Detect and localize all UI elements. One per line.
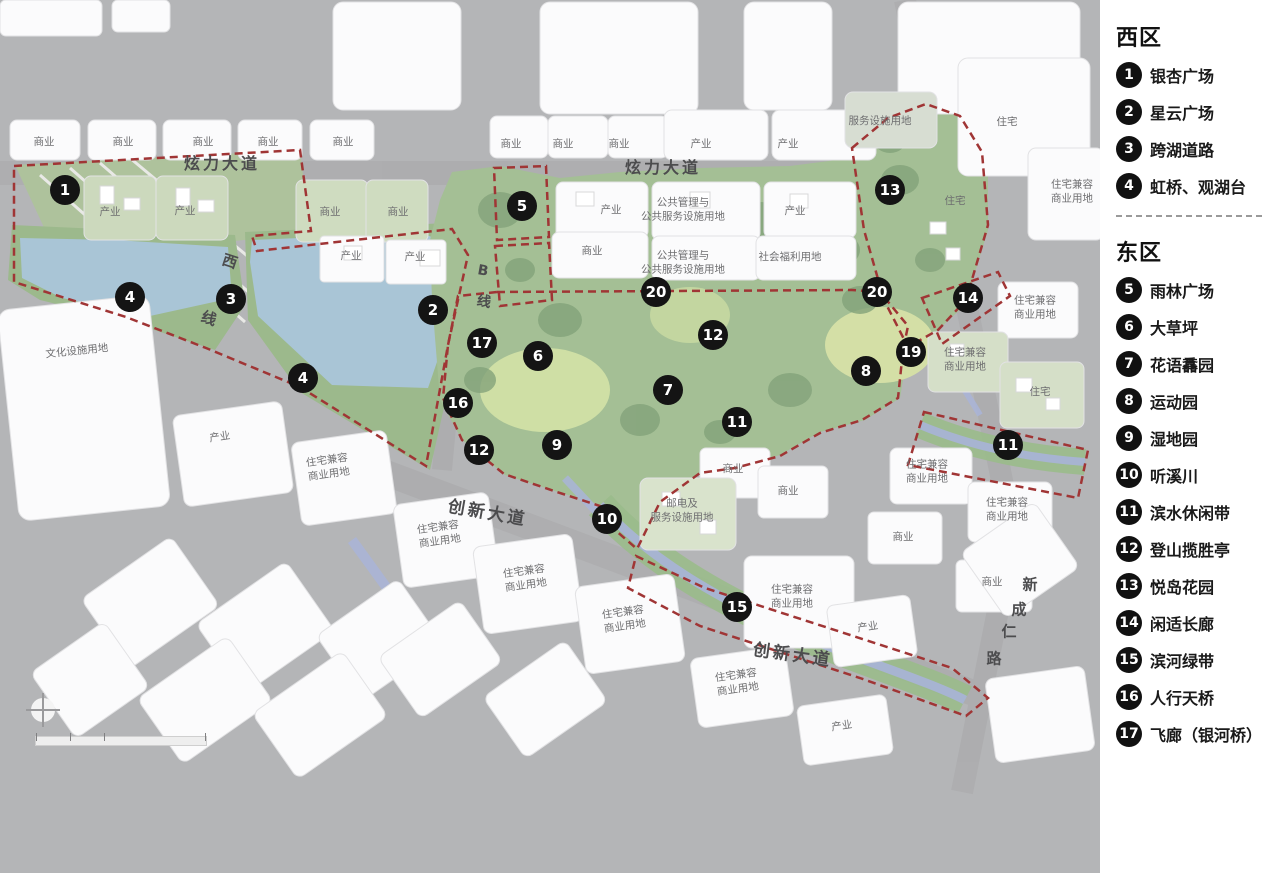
area-label: 商业 [723,463,744,477]
legend-east-list: 5雨林广场6大草坪7花语馫园8运动园9湿地园10听溪川11滨水休闲带12登山揽胜… [1116,277,1270,747]
legend-item-label: 闲适长廊 [1150,611,1214,635]
area-label: 商业 [553,138,574,152]
road-label: 路 [986,648,1001,669]
legend-number-badge: 2 [1116,99,1142,125]
legend-item-6: 6大草坪 [1116,314,1270,340]
compass-icon [31,698,55,722]
legend-panel: 西区 1银杏广场2星云广场3跨湖道路4虹桥、观湖台 东区 5雨林广场6大草坪7花… [1100,0,1280,873]
scale-bar [35,736,207,746]
area-label: 商业 [113,136,134,150]
legend-number-badge: 9 [1116,425,1142,451]
legend-number-badge: 15 [1116,647,1142,673]
legend-number-badge: 17 [1116,721,1142,747]
map-marker-15: 15 [722,592,752,622]
map-marker-17: 17 [467,328,497,358]
legend-item-1: 1银杏广场 [1116,62,1270,88]
map-marker-10: 10 [592,504,622,534]
area-label: 商业 [388,206,409,220]
legend-item-11: 11滨水休闲带 [1116,499,1270,525]
road-label: 成 [1011,599,1026,620]
road-label: 炫力大道 [625,154,701,178]
legend-number-badge: 11 [1116,499,1142,525]
legend-item-2: 2星云广场 [1116,99,1270,125]
map-marker-6: 6 [523,341,553,371]
area-label: 社会福利用地 [759,251,822,265]
map-marker-11: 11 [722,407,752,437]
map-marker-19: 19 [896,337,926,367]
legend-divider [1116,215,1262,217]
map-marker-4: 4 [115,282,145,312]
legend-number-badge: 3 [1116,136,1142,162]
map-marker-2: 2 [418,295,448,325]
road-label: 新 [1022,574,1037,595]
legend-item-label: 湿地园 [1150,426,1198,450]
legend-item-label: 跨湖道路 [1150,137,1214,161]
map-marker-20: 20 [862,277,892,307]
legend-item-label: 星云广场 [1150,100,1214,124]
legend-number-badge: 16 [1116,684,1142,710]
area-label: 住宅兼容 商业用地 [906,458,948,485]
legend-item-label: 飞廊（银河桥） [1150,722,1262,746]
area-label: 住宅 [945,195,966,209]
map-marker-5: 5 [507,191,537,221]
legend-west-title: 西区 [1116,20,1270,52]
area-label: 住宅兼容 商业用地 [714,667,759,700]
area-label: 住宅兼容 商业用地 [416,519,461,552]
map-marker-20: 20 [641,277,671,307]
area-label: 商业 [501,138,522,152]
legend-east-title: 东区 [1116,235,1270,267]
area-label: 商业 [778,485,799,499]
legend-item-4: 4虹桥、观湖台 [1116,173,1270,199]
legend-item-9: 9湿地园 [1116,425,1270,451]
map-marker-12: 12 [464,435,494,465]
legend-number-badge: 6 [1116,314,1142,340]
road-label: 仁 [1001,621,1016,642]
map-marker-9: 9 [542,430,572,460]
map-marker-4: 4 [288,363,318,393]
map-marker-7: 7 [653,375,683,405]
area-label: 产业 [691,138,712,152]
legend-item-15: 15滨河绿带 [1116,647,1270,673]
legend-number-badge: 14 [1116,610,1142,636]
map-marker-1: 1 [50,175,80,205]
legend-item-label: 银杏广场 [1150,63,1214,87]
area-label: 商业 [320,206,341,220]
legend-item-10: 10听溪川 [1116,462,1270,488]
area-label: 商业 [333,136,354,150]
legend-number-badge: 13 [1116,573,1142,599]
legend-item-label: 花语馫园 [1150,352,1214,376]
area-label: 产业 [341,250,362,264]
map-marker-16: 16 [443,388,473,418]
legend-west-list: 1银杏广场2星云广场3跨湖道路4虹桥、观湖台 [1116,62,1270,199]
legend-item-17: 17飞廊（银河桥） [1116,721,1270,747]
legend-item-label: 滨河绿带 [1150,648,1214,672]
area-label: 住宅兼容 商业用地 [502,563,547,596]
map-marker-12: 12 [698,320,728,350]
area-label: 商业 [582,245,603,259]
legend-item-12: 12登山揽胜亭 [1116,536,1270,562]
area-label: 公共管理与 公共服务设施用地 [641,249,725,276]
legend-item-label: 虹桥、观湖台 [1150,174,1246,198]
legend-item-3: 3跨湖道路 [1116,136,1270,162]
area-label: 住宅兼容 商业用地 [601,604,646,637]
legend-item-8: 8运动园 [1116,388,1270,414]
area-label: 住宅兼容 商业用地 [305,452,350,485]
area-label: 住宅 [997,116,1018,130]
area-label: 产业 [209,430,232,446]
legend-item-label: 雨林广场 [1150,278,1214,302]
map-marker-13: 13 [875,175,905,205]
site-plan-canvas: 炫力大道炫力大道创新大道创新大道西线B线新成仁路 商业商业商业商业商业商业商业商… [0,0,1280,873]
area-label: 商业 [258,136,279,150]
area-label: 服务设施用地 [849,115,912,129]
area-label: 商业 [982,576,1003,590]
legend-number-badge: 10 [1116,462,1142,488]
legend-number-badge: 5 [1116,277,1142,303]
map-marker-3: 3 [216,284,246,314]
area-label: 住宅兼容 商业用地 [1051,178,1093,205]
legend-number-badge: 7 [1116,351,1142,377]
area-label: 产业 [857,620,880,636]
legend-number-badge: 4 [1116,173,1142,199]
area-label: 住宅兼容 商业用地 [944,346,986,373]
legend-item-16: 16人行天桥 [1116,684,1270,710]
area-label: 住宅兼容 商业用地 [771,583,813,610]
area-label: 商业 [193,136,214,150]
legend-item-7: 7花语馫园 [1116,351,1270,377]
area-label: 公共管理与 公共服务设施用地 [641,196,725,223]
legend-number-badge: 12 [1116,536,1142,562]
area-label: 产业 [175,205,196,219]
road-label: 炫力大道 [184,150,260,174]
area-label: 商业 [893,531,914,545]
area-label: 产业 [405,251,426,265]
area-label: 邮电及 服务设施用地 [651,497,714,524]
area-label: 产业 [778,138,799,152]
map-marker-14: 14 [953,283,983,313]
legend-number-badge: 8 [1116,388,1142,414]
legend-item-label: 运动园 [1150,389,1198,413]
area-label: 产业 [831,719,854,735]
legend-item-13: 13悦岛花园 [1116,573,1270,599]
legend-item-label: 人行天桥 [1150,685,1214,709]
map-marker-8: 8 [851,356,881,386]
area-label: 产业 [601,204,622,218]
area-label: 住宅 [1030,386,1051,400]
map-marker-11: 11 [993,430,1023,460]
legend-item-label: 登山揽胜亭 [1150,537,1230,561]
legend-item-label: 大草坪 [1150,315,1198,339]
area-label: 住宅兼容 商业用地 [1014,294,1056,321]
area-label: 住宅兼容 商业用地 [986,496,1028,523]
legend-item-label: 听溪川 [1150,463,1198,487]
area-label: 商业 [609,138,630,152]
legend-item-5: 5雨林广场 [1116,277,1270,303]
area-label: 商业 [34,136,55,150]
legend-item-14: 14闲适长廊 [1116,610,1270,636]
area-label: 产业 [100,206,121,220]
legend-item-label: 悦岛花园 [1150,574,1214,598]
area-label: 产业 [785,205,806,219]
legend-item-label: 滨水休闲带 [1150,500,1230,524]
legend-number-badge: 1 [1116,62,1142,88]
